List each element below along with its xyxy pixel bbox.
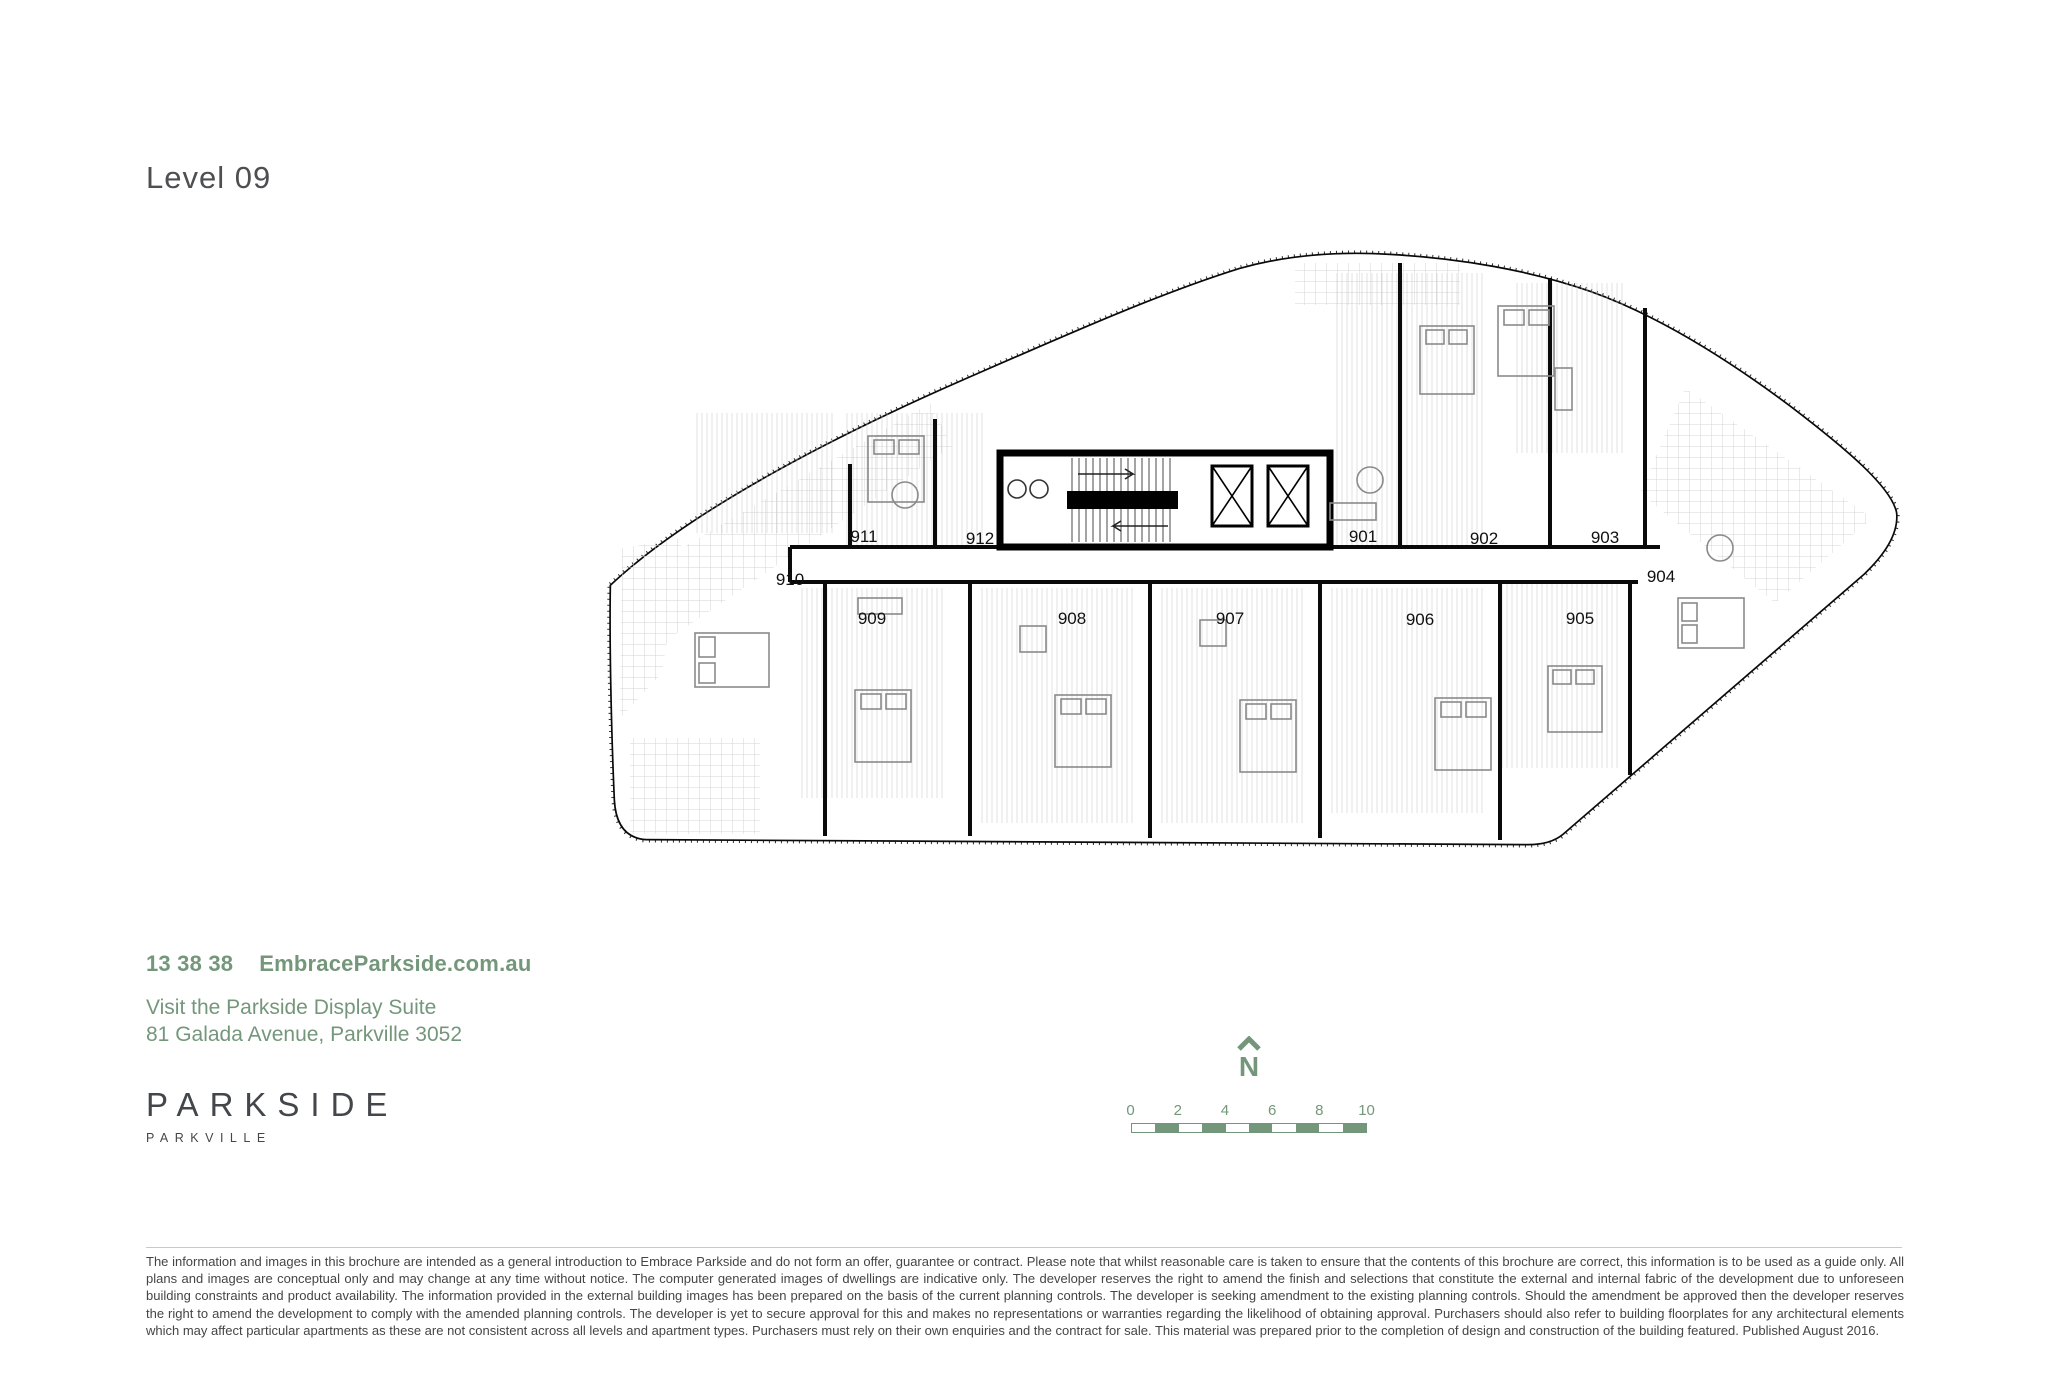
- address-line: 81 Galada Avenue, Parkville 3052: [146, 1021, 531, 1048]
- page-title: Level 09: [146, 160, 271, 196]
- disclaimer-text: The information and images in this broch…: [146, 1253, 1904, 1339]
- unit-label-902: 902: [1470, 529, 1498, 548]
- scale-bar-ticks: 0 2 4 6 8 10: [1107, 1102, 1391, 1119]
- scale-tick: 6: [1249, 1102, 1296, 1119]
- scale-bar-strip: [1131, 1123, 1367, 1133]
- display-suite-line: Visit the Parkside Display Suite: [146, 994, 531, 1021]
- unit-label-908: 908: [1058, 609, 1086, 628]
- floor-plan-drawing: 901 902 903 904 905 906 907 908 909 910 …: [600, 248, 1925, 876]
- unit-label-906: 906: [1406, 610, 1434, 629]
- unit-label-903: 903: [1591, 528, 1619, 547]
- phone-number: 13 38 38: [146, 951, 233, 976]
- contact-block: 13 38 38EmbraceParkside.com.au Visit the…: [146, 951, 531, 1048]
- north-label: N: [1239, 1053, 1259, 1081]
- north-arrow-icon: [1235, 1036, 1263, 1051]
- scale-bar: 0 2 4 6 8 10: [1107, 1102, 1391, 1133]
- unit-label-905: 905: [1566, 609, 1594, 628]
- unit-label-904: 904: [1647, 567, 1675, 586]
- scale-tick: 8: [1296, 1102, 1343, 1119]
- divider-rule: [146, 1247, 1902, 1248]
- unit-label-910: 910: [776, 570, 804, 589]
- unit-label-901: 901: [1349, 527, 1377, 546]
- unit-label-912: 912: [966, 529, 994, 548]
- scale-tick: 2: [1154, 1102, 1201, 1119]
- corridor: [790, 549, 1660, 580]
- unit-label-907: 907: [1216, 609, 1244, 628]
- brochure-page: Level 09: [0, 0, 2048, 1384]
- floor-plan: 901 902 903 904 905 906 907 908 909 910 …: [600, 248, 1925, 876]
- website-link[interactable]: EmbraceParkside.com.au: [259, 951, 531, 976]
- scale-tick: 0: [1107, 1102, 1154, 1119]
- stairs: [1067, 458, 1178, 542]
- scale-tick: 10: [1343, 1102, 1390, 1119]
- logo-brand-text: PARKSIDE: [146, 1086, 398, 1124]
- parkside-logo: PARKSIDE PARKVILLE: [146, 1086, 398, 1145]
- logo-suburb-text: PARKVILLE: [146, 1131, 398, 1145]
- unit-label-911: 911: [850, 527, 877, 546]
- unit-label-909: 909: [858, 609, 886, 628]
- scale-tick: 4: [1201, 1102, 1248, 1119]
- north-indicator: N: [1228, 1036, 1270, 1081]
- core: [1000, 453, 1330, 547]
